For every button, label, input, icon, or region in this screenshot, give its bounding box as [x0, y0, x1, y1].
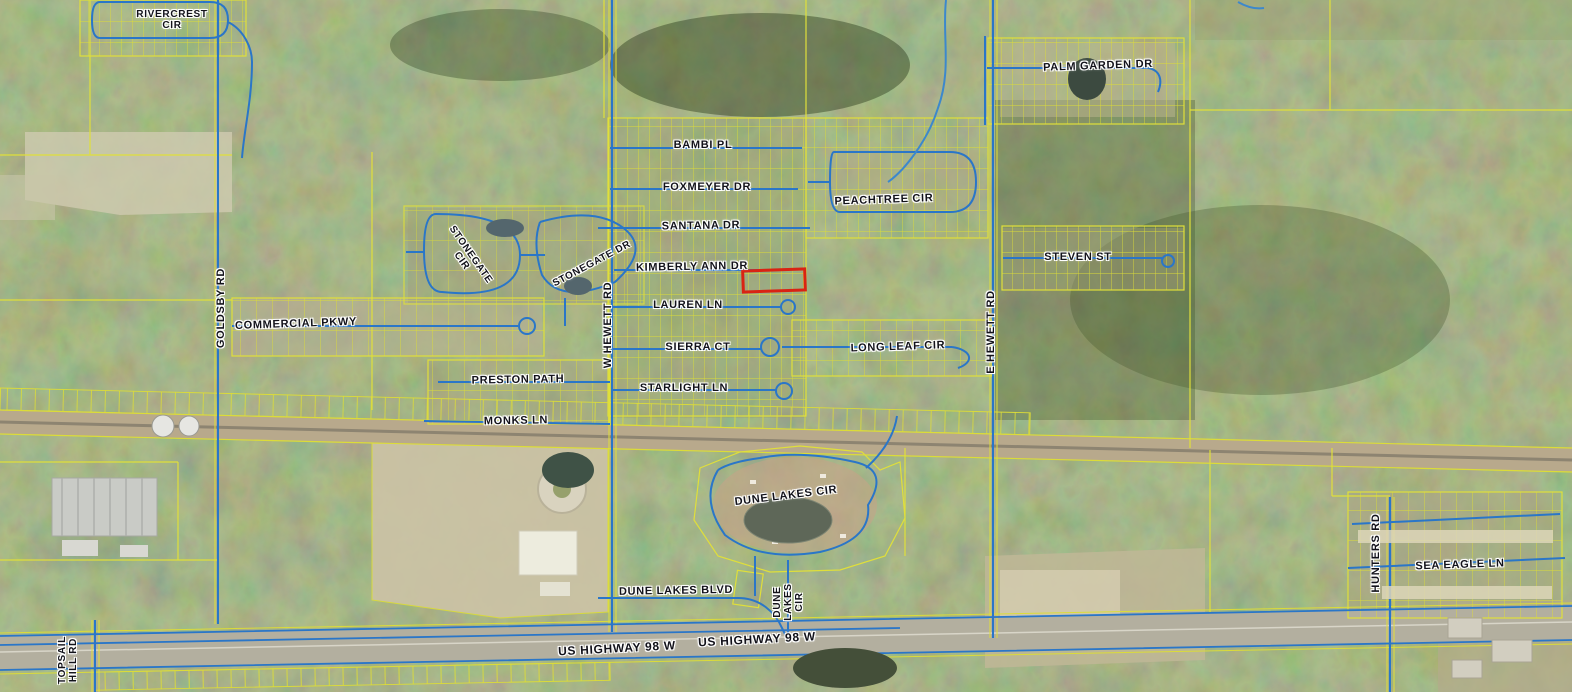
map-viewport[interactable]: RIVERCRESTCIRPALM GARDEN DRBAMBI PLFOXME…: [0, 0, 1572, 692]
aerial-basemap: [0, 0, 1572, 692]
